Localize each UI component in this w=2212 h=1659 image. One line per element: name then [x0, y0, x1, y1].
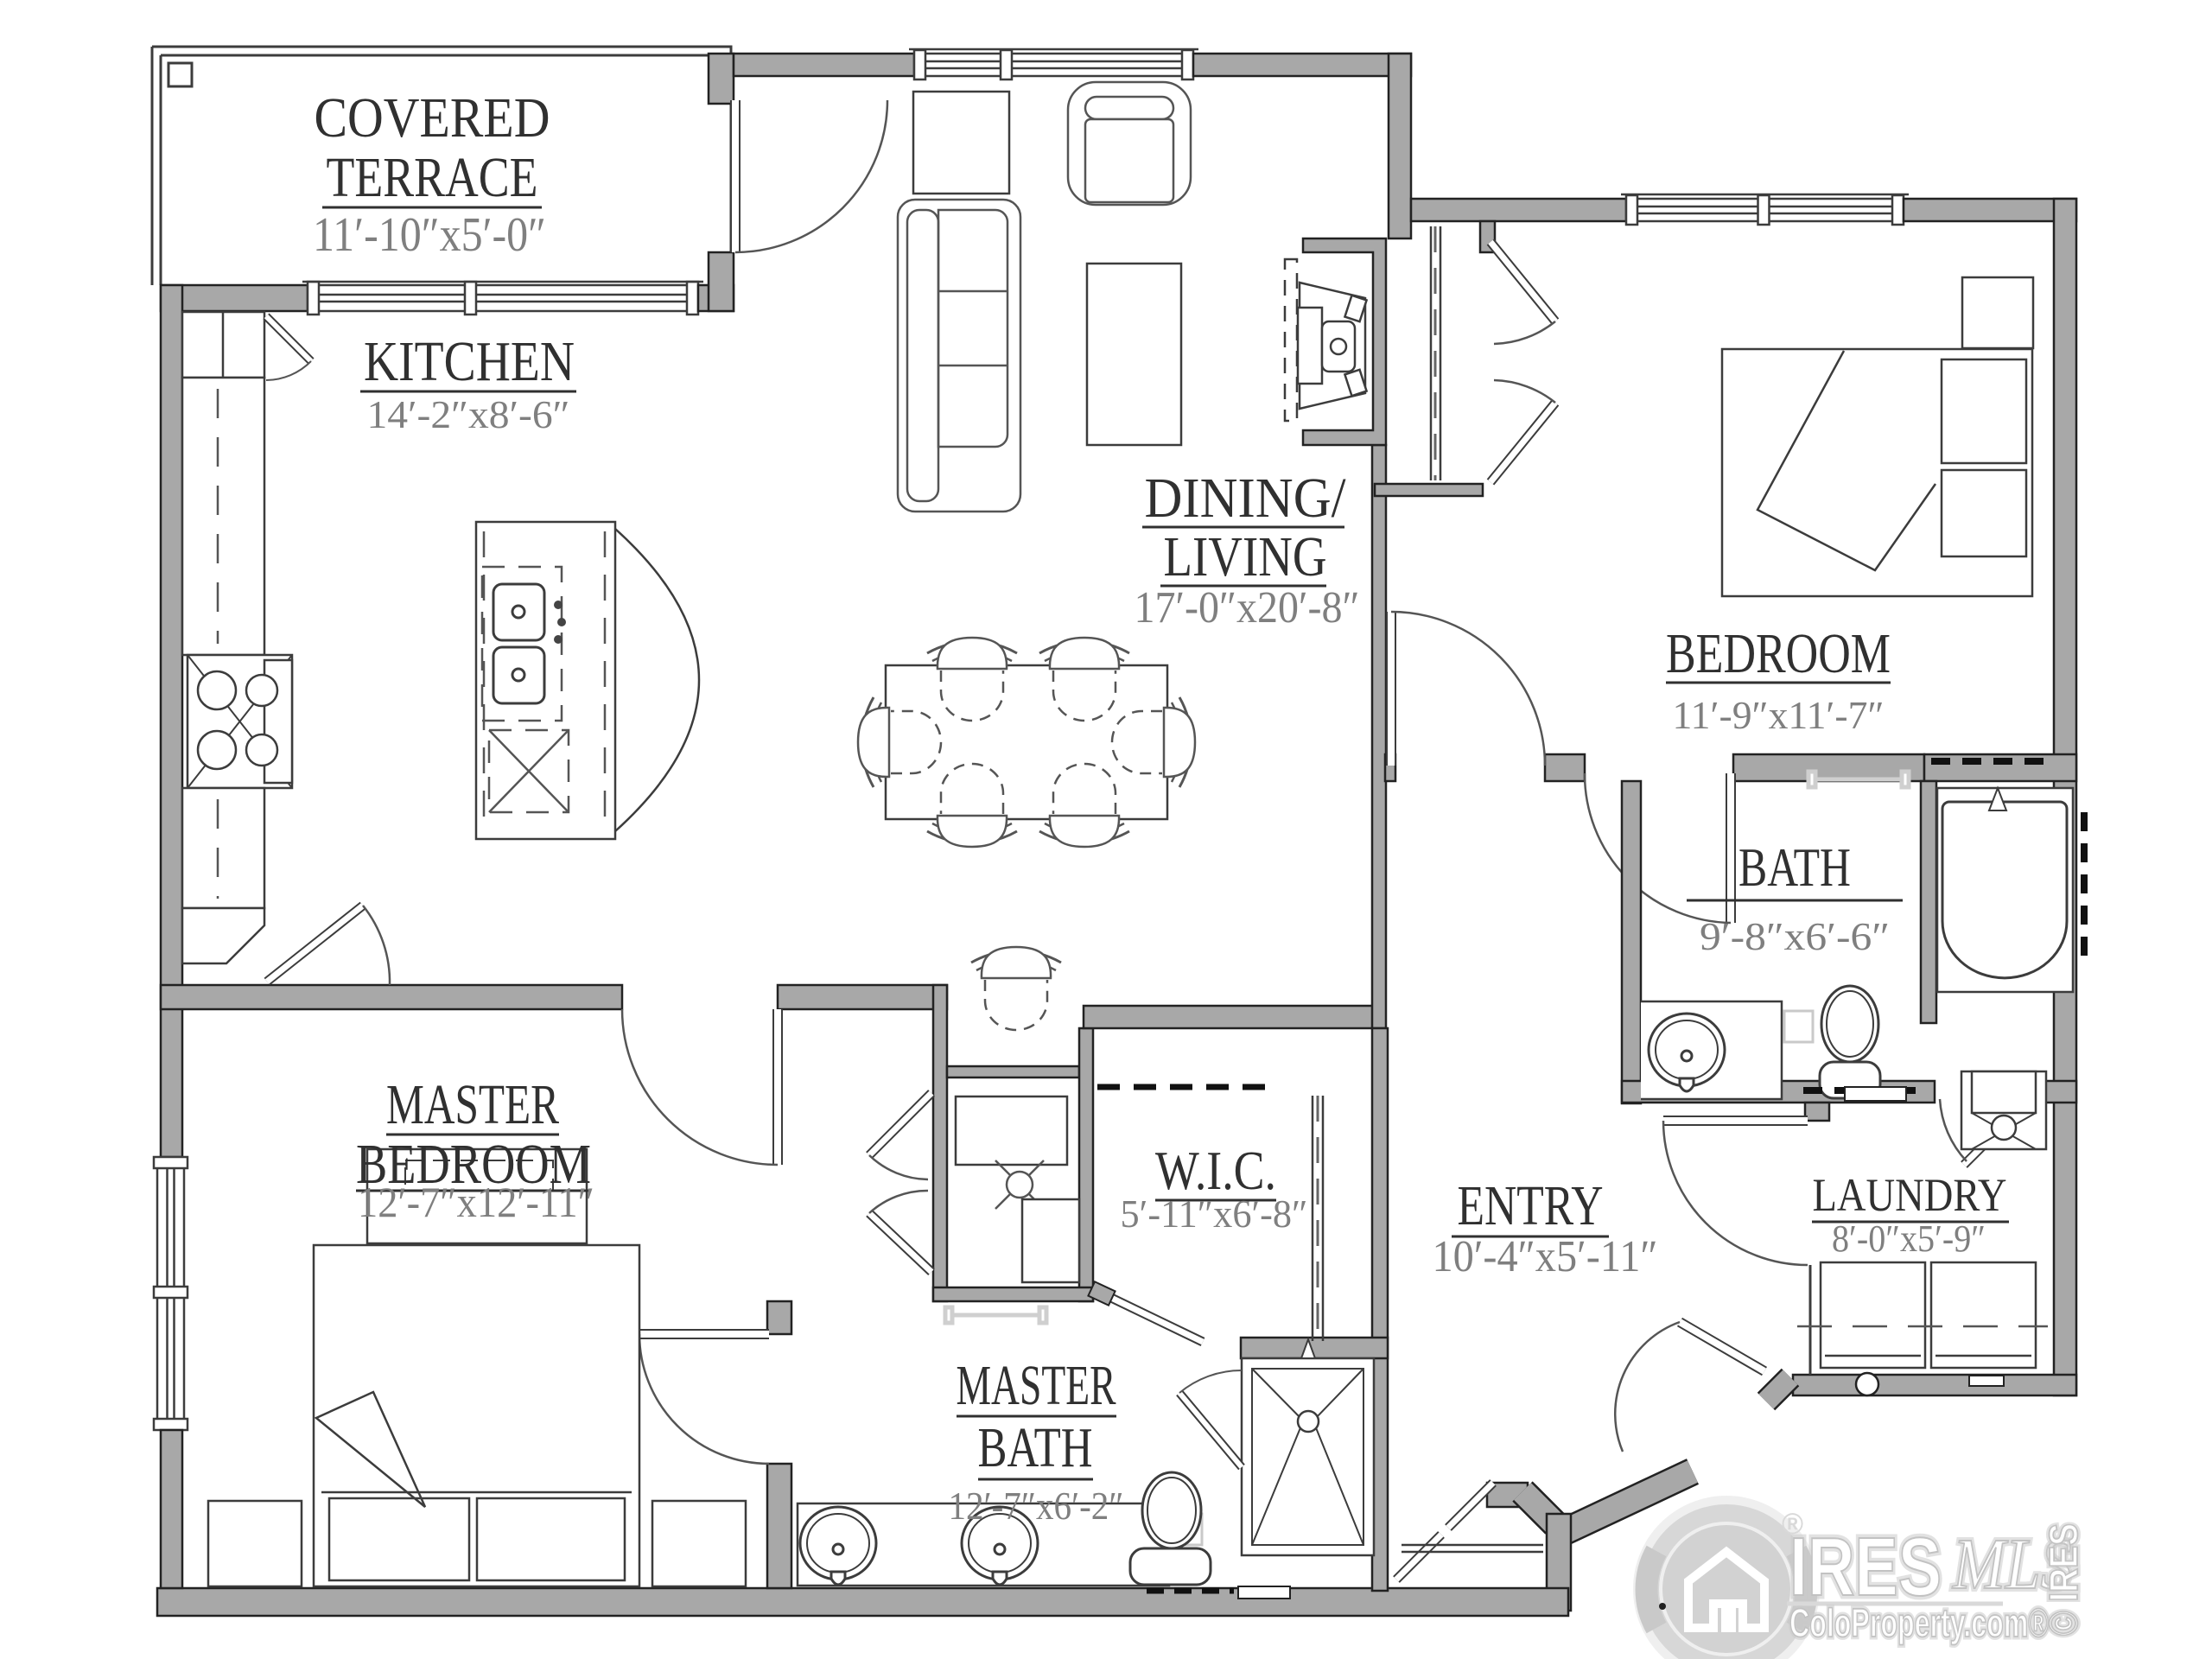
svg-text:BATH: BATH: [1738, 836, 1851, 898]
svg-text:9′-8″x6′-6″: 9′-8″x6′-6″: [1700, 914, 1890, 958]
svg-text:COVERED: COVERED: [315, 86, 550, 149]
svg-text:ENTRY: ENTRY: [1458, 1174, 1604, 1237]
svg-text:DINING/: DINING/: [1145, 467, 1347, 530]
svg-text:8′-0″x5′-9″: 8′-0″x5′-9″: [1832, 1217, 1986, 1260]
svg-text:12′-7″x6′-2″: 12′-7″x6′-2″: [949, 1484, 1124, 1528]
svg-text:IRES: IRES: [1789, 1521, 1942, 1613]
svg-text:ColoProperty.com®: ColoProperty.com®: [1789, 1600, 2049, 1645]
svg-text:10′-4″x5′-11″: 10′-4″x5′-11″: [1433, 1232, 1658, 1281]
svg-text:5′-11″x6′-8″: 5′-11″x6′-8″: [1121, 1192, 1308, 1236]
svg-text:KITCHEN: KITCHEN: [364, 330, 575, 393]
svg-text:17′-0″x20′-8″: 17′-0″x20′-8″: [1135, 583, 1360, 632]
svg-text:MASTER: MASTER: [957, 1354, 1116, 1417]
svg-text:© IRES: © IRES: [2041, 1523, 2086, 1636]
svg-text:11′-10″x5′-0″: 11′-10″x5′-0″: [313, 208, 546, 262]
svg-text:11′-9″x11′-7″: 11′-9″x11′-7″: [1673, 693, 1885, 737]
svg-text:TERRACE: TERRACE: [327, 146, 538, 209]
svg-text:MASTER: MASTER: [386, 1073, 559, 1136]
svg-text:14′-2″x8′-6″: 14′-2″x8′-6″: [367, 392, 570, 436]
svg-text:12′-7″x12′-11″: 12′-7″x12′-11″: [358, 1178, 594, 1226]
svg-text:LIVING: LIVING: [1164, 525, 1327, 588]
svg-text:BATH: BATH: [978, 1416, 1093, 1479]
svg-text:LAUNDRY: LAUNDRY: [1813, 1169, 2007, 1221]
svg-text:BEDROOM: BEDROOM: [1666, 622, 1891, 685]
